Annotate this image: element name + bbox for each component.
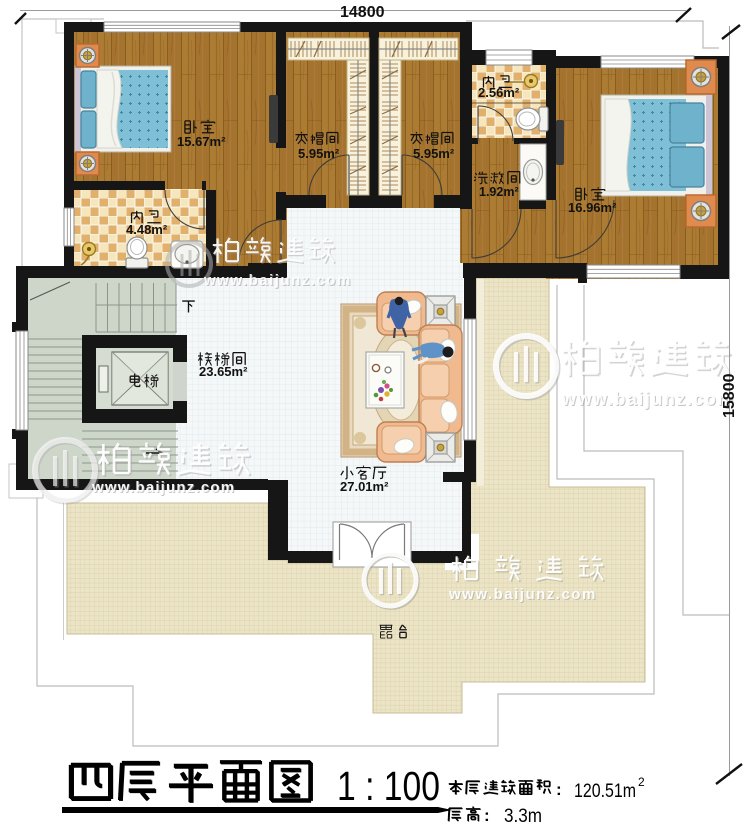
svg-text:4.48m²: 4.48m² (126, 222, 168, 237)
svg-text:1 : 100: 1 : 100 (337, 763, 440, 809)
svg-text:27.01m²: 27.01m² (340, 479, 389, 494)
svg-text::: : (556, 780, 562, 799)
svg-text:www.baijunz.com: www.baijunz.com (91, 479, 235, 496)
svg-text:16.96m²: 16.96m² (568, 200, 617, 215)
svg-text:120.51m: 120.51m (574, 781, 636, 802)
svg-text:5.95m²: 5.95m² (298, 146, 340, 161)
svg-text:www.baijunz.com: www.baijunz.com (448, 586, 597, 603)
svg-text:3.3m: 3.3m (504, 806, 542, 827)
svg-text:14800: 14800 (340, 4, 385, 21)
svg-text:23.65m²: 23.65m² (199, 364, 248, 379)
svg-text::: : (484, 806, 490, 825)
svg-text:www.baijunz.com: www.baijunz.com (203, 272, 352, 289)
svg-text:2.56m²: 2.56m² (478, 85, 520, 100)
svg-text:www.baijunz.com: www.baijunz.com (561, 389, 735, 409)
svg-text:5.95m²: 5.95m² (413, 146, 455, 161)
svg-text:15.67m²: 15.67m² (177, 134, 226, 149)
svg-text:2: 2 (638, 775, 645, 789)
svg-text:1.92m²: 1.92m² (479, 185, 519, 199)
svg-text:15800: 15800 (721, 373, 738, 418)
